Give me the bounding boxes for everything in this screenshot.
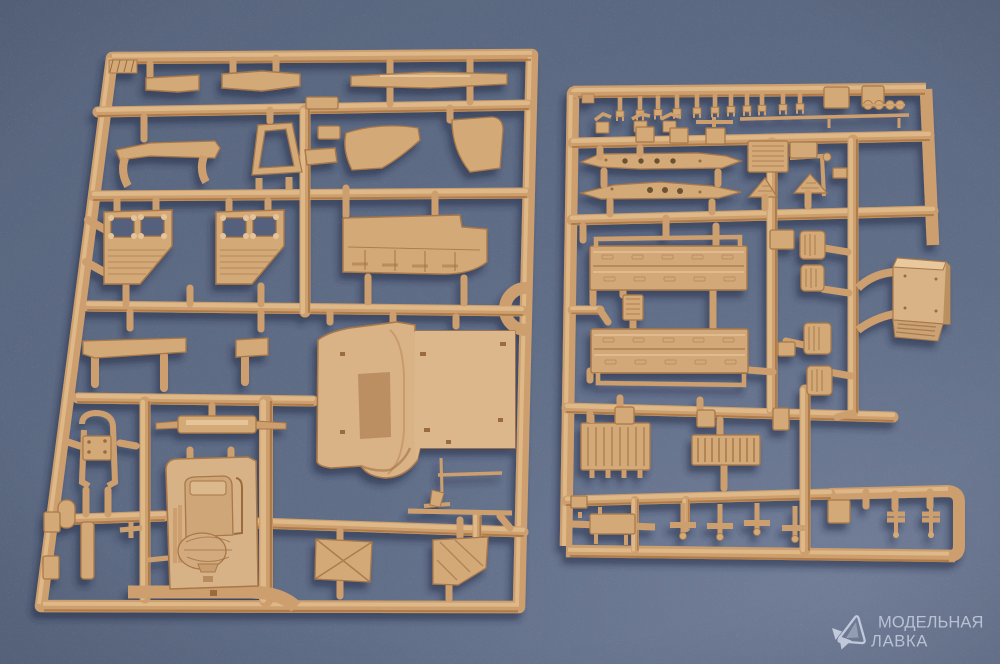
svg-text:МОДЕЛЬНАЯ: МОДЕЛЬНАЯ: [878, 614, 984, 632]
svg-text:ЛАВКА: ЛАВКА: [871, 633, 928, 651]
